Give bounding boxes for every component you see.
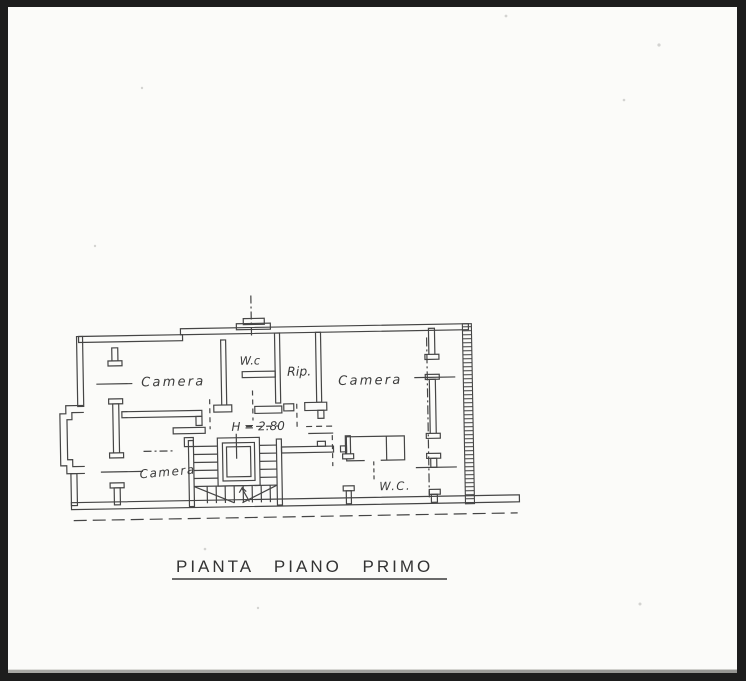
staircase	[184, 436, 282, 507]
wc-fixtures	[340, 435, 405, 504]
drawing-title: PIANTA PIANO PRIMO	[172, 557, 447, 579]
plan: Camera W.c Rip. Camera Camera W.C. H = 2…	[58, 291, 520, 521]
stair-core	[217, 437, 260, 486]
left-bay-inner	[67, 412, 85, 466]
right-axis-line	[427, 337, 430, 497]
room-label-wc-top: W.c	[240, 353, 261, 367]
floor-plan-drawing: Camera W.c Rip. Camera Camera W.C. H = 2…	[0, 0, 746, 681]
room-label-camera-bottom-left: Camera	[139, 463, 196, 482]
room-label-ripostiglio: Rip.	[287, 363, 311, 378]
drawing-title-text: PIANTA PIANO PRIMO	[176, 557, 433, 576]
room-label-camera-top-left: Camera	[141, 374, 205, 390]
ceiling-height-annotation: H = 2.80	[231, 419, 285, 434]
scan-noise	[94, 15, 661, 610]
interior-walls	[121, 332, 334, 456]
room-label-camera-top-right: Camera	[338, 373, 402, 389]
stair-treads	[193, 445, 277, 503]
bottom-dashed-line	[74, 513, 518, 521]
axis-centerline	[251, 295, 252, 335]
hatched-wall	[462, 324, 474, 504]
room-label-wc-bottom-right: W.C.	[379, 479, 411, 494]
